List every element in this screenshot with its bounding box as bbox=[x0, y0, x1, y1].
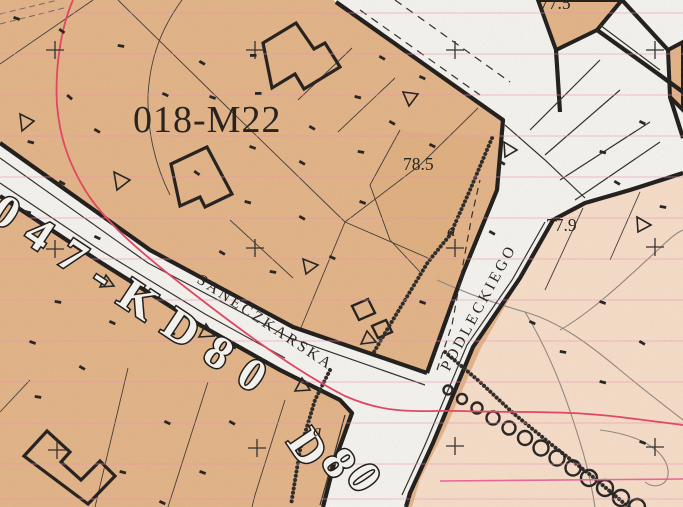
map-canvas: 018-M22 047-KD80 D80 SANECZKARSKA PODLEC… bbox=[0, 0, 683, 507]
cadastral-map: 018-M22 047-KD80 D80 SANECZKARSKA PODLEC… bbox=[0, 0, 683, 507]
scan-noise-overlay bbox=[0, 0, 683, 507]
